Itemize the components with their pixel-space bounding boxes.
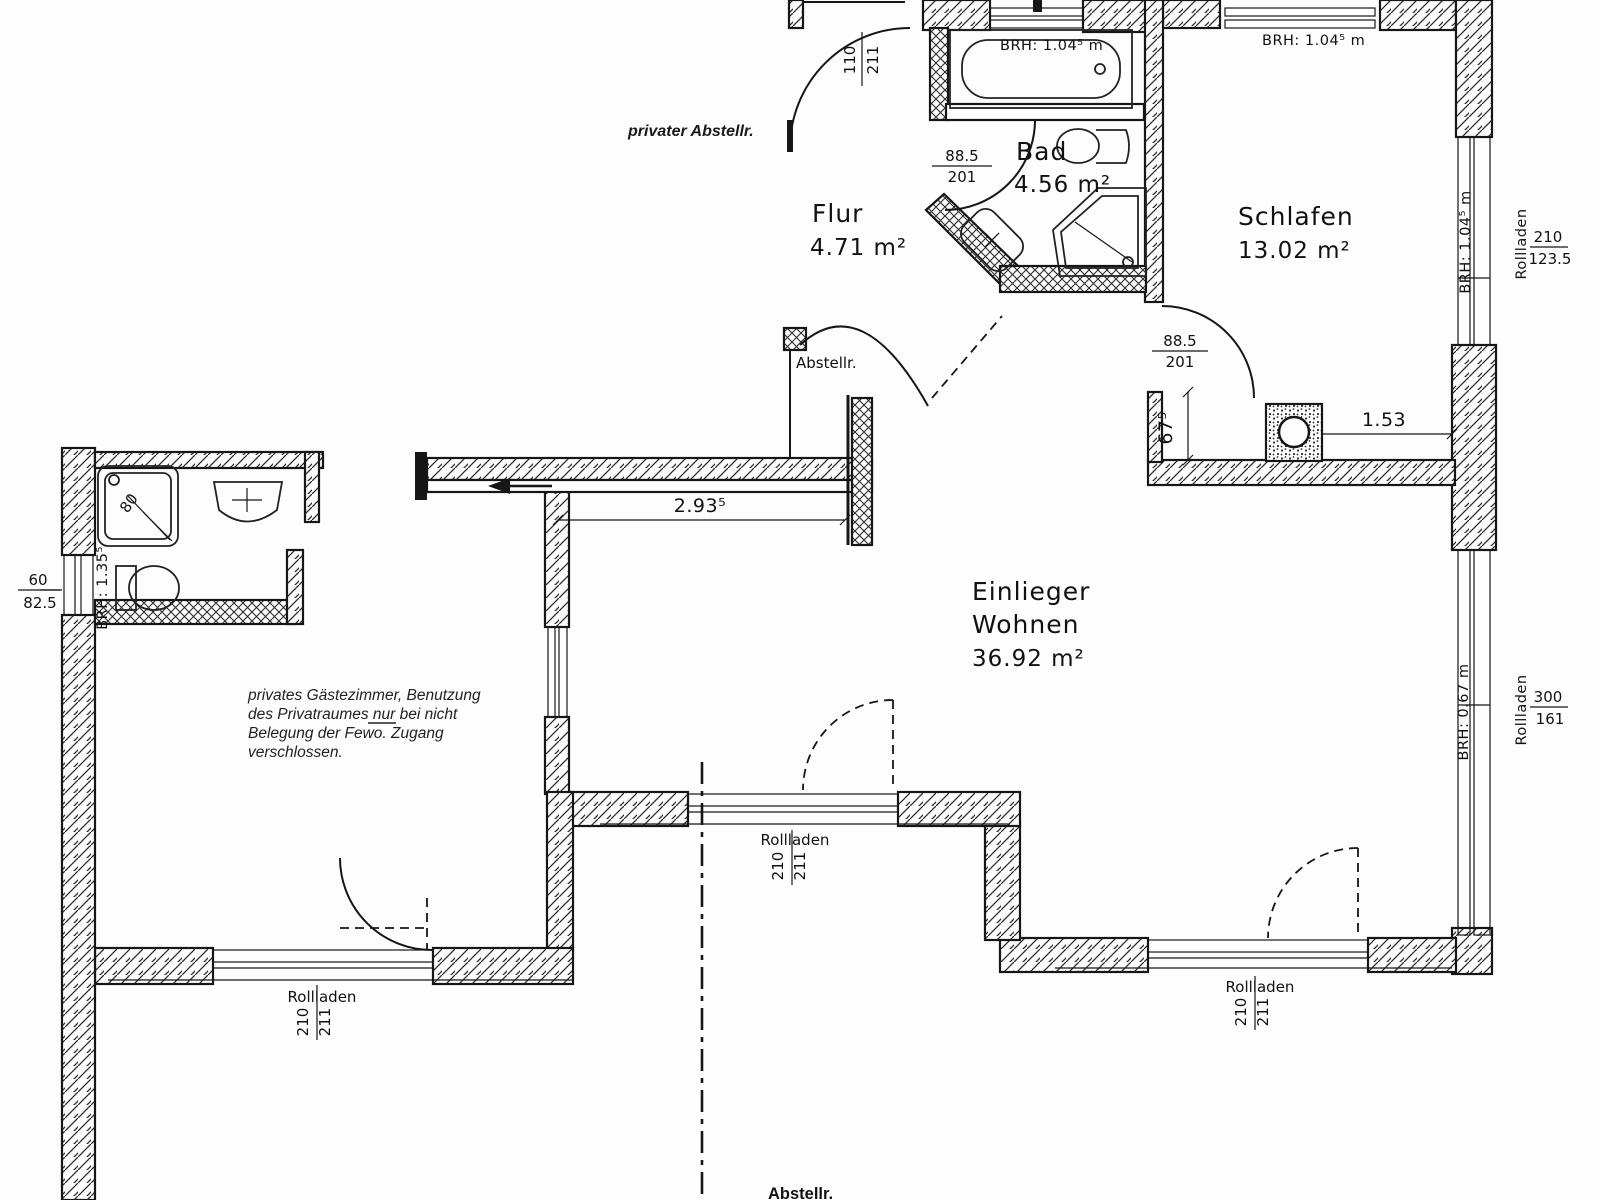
wall-segment (1083, 0, 1147, 32)
window-wohnen-right (1474, 550, 1490, 935)
door-flur-top-w: 110 (841, 46, 859, 75)
walls (62, 0, 1496, 1200)
window-guest-left-w: 60 (28, 571, 47, 589)
wall-segment (433, 948, 573, 984)
wall-segment (1368, 938, 1456, 972)
wall-jamb (287, 550, 303, 624)
wall-top-main (427, 458, 872, 480)
label-private-storage: privater Abstellr. (627, 123, 754, 140)
wall-left (62, 615, 95, 1200)
window-interior (548, 627, 555, 717)
rollladen-guest-bottom: Rollladen (288, 988, 357, 1006)
wall-under-tub (946, 104, 1144, 120)
wall-guest-right (547, 792, 573, 950)
note-line-1: privates Gästezimmer, Benutzung (247, 687, 481, 704)
door-bad-h: 201 (948, 168, 977, 186)
window-wohnen-middle (688, 794, 898, 806)
floor-plan-drawing: Flur 4.71 m² Bad 4.56 m² Schlafen 13.02 … (0, 0, 1600, 1200)
wall-right (1452, 345, 1496, 550)
wall-guest-right (545, 717, 569, 794)
wall-segment (1163, 0, 1220, 28)
door-arc-terrace-right (1268, 848, 1358, 938)
dim-chimney-offset: 1.53 (1362, 409, 1406, 431)
wall-bad-schlafen (1145, 0, 1163, 302)
wall-guest-right (545, 490, 569, 627)
bathtub-drain-icon (1095, 64, 1105, 74)
brh-schlafen-top: BRH: 1.04⁵ m (1262, 33, 1365, 49)
note-line-4: verschlossen. (248, 744, 343, 761)
window-wohnen-right-h: 161 (1536, 710, 1565, 728)
wall-segment (898, 792, 1020, 826)
shower-head-icon (109, 475, 119, 485)
door-schlafen-w: 88.5 (1163, 332, 1196, 350)
brh-bath-top: BRH: 1.04⁵ m (1000, 38, 1103, 54)
window-bath-left (64, 555, 75, 615)
window-guest-left-h: 82.5 (23, 594, 56, 612)
chimney (1266, 404, 1322, 461)
window-mullion (1033, 0, 1042, 12)
room-area-flur: 4.71 m² (810, 235, 907, 261)
wall-post (852, 398, 872, 545)
rollladen-wohnen-middle: Rollladen (761, 831, 830, 849)
window-schlafen-right-h: 123.5 (1529, 250, 1572, 268)
label-storage-flur: Abstellr. (796, 354, 857, 372)
door-arc-schlafen (1162, 306, 1254, 398)
wall-segment (985, 822, 1020, 940)
door-schlafen-h: 201 (1166, 353, 1195, 371)
dim-shower-size: 80 (116, 490, 142, 516)
window-wohnen-bottom (1148, 940, 1368, 952)
room-area-schlafen: 13.02 m² (1238, 238, 1351, 264)
window-schlafen-right-w: 210 (1534, 228, 1563, 246)
door-swing-dashed (932, 316, 1002, 398)
shutter-middle-w: 210 (769, 852, 787, 881)
wall-post (784, 328, 806, 350)
window-schlafen-right (1474, 137, 1490, 345)
wall-bath-bottom (95, 600, 295, 624)
window-wohnen-right-w: 300 (1534, 688, 1563, 706)
window-guest-bottom (213, 950, 433, 962)
rollladen-wohnen-right: Rollladen (1514, 674, 1530, 745)
room-label-schlafen: Schlafen (1238, 202, 1354, 231)
room-area-bad: 4.56 m² (1014, 172, 1111, 198)
rollladen-wohnen-bottom: Rollladen (1226, 978, 1295, 996)
chimney-flue-icon (1279, 417, 1309, 447)
window-schlafen-top (1225, 20, 1375, 28)
wall-segment (1000, 938, 1148, 972)
wall-left (62, 448, 95, 555)
label-storage-bottom: Abstellr. (768, 1185, 833, 1200)
window-bath-left (81, 555, 93, 615)
wall-segment (923, 0, 990, 30)
wall-cap (415, 452, 427, 500)
shutter-right-h: 211 (1254, 998, 1272, 1027)
wall-segment (565, 792, 688, 826)
dim-interior-width: 2.93⁵ (674, 495, 726, 517)
rollladen-schlafen-right: Rollladen (1514, 208, 1530, 279)
window-bath-top (990, 20, 1083, 28)
door-flur-top-h: 211 (864, 46, 882, 75)
shower-line (1075, 222, 1132, 262)
shutter-guest-w: 210 (294, 1008, 312, 1037)
room-label-flur: Flur (812, 199, 863, 228)
door-arc-terrace-middle (803, 700, 893, 790)
toilet-tank (1096, 130, 1129, 163)
shutter-right-w: 210 (1232, 998, 1250, 1027)
wall-jamb (305, 452, 319, 522)
shutter-middle-h: 211 (791, 852, 809, 881)
note-line-2: des Privatraumes nur bei nicht (248, 706, 458, 723)
wall-segment (1380, 0, 1456, 30)
window-schlafen-top (1225, 8, 1375, 16)
washbasin (214, 482, 282, 522)
note-line-3: Belegung der Fewo. Zugang (248, 725, 444, 742)
brh-schlafen-right: BRH: 1.04⁵ m (1458, 190, 1474, 293)
door-arc-guest (340, 858, 432, 950)
wall-segment (789, 0, 803, 28)
brh-wohnen-right: BRH: 0.67 m (1456, 664, 1472, 761)
room-label-wohnen-2: Wohnen (972, 610, 1079, 639)
room-area-wohnen: 36.92 m² (972, 646, 1085, 672)
floor-plan-page: Flur 4.71 m² Bad 4.56 m² Schlafen 13.02 … (0, 0, 1600, 1200)
dim-wall-recess: 67⁵ (1155, 411, 1177, 444)
window-interior (559, 627, 567, 717)
dim-leader (143, 512, 172, 541)
brh-bath-left: BRH: 1.35⁵ (95, 546, 111, 630)
room-label-bad: Bad (1016, 137, 1067, 166)
wall-schlafen-bottom (1148, 460, 1455, 485)
wall-bad-bottom (1000, 266, 1146, 292)
private-bath-fixtures (98, 466, 282, 610)
shutter-guest-h: 211 (316, 1008, 334, 1037)
door-bad-w: 88.5 (945, 147, 978, 165)
wall-right (1456, 0, 1492, 137)
room-label-wohnen-1: Einlieger (972, 577, 1090, 606)
wall-segment (95, 948, 213, 984)
